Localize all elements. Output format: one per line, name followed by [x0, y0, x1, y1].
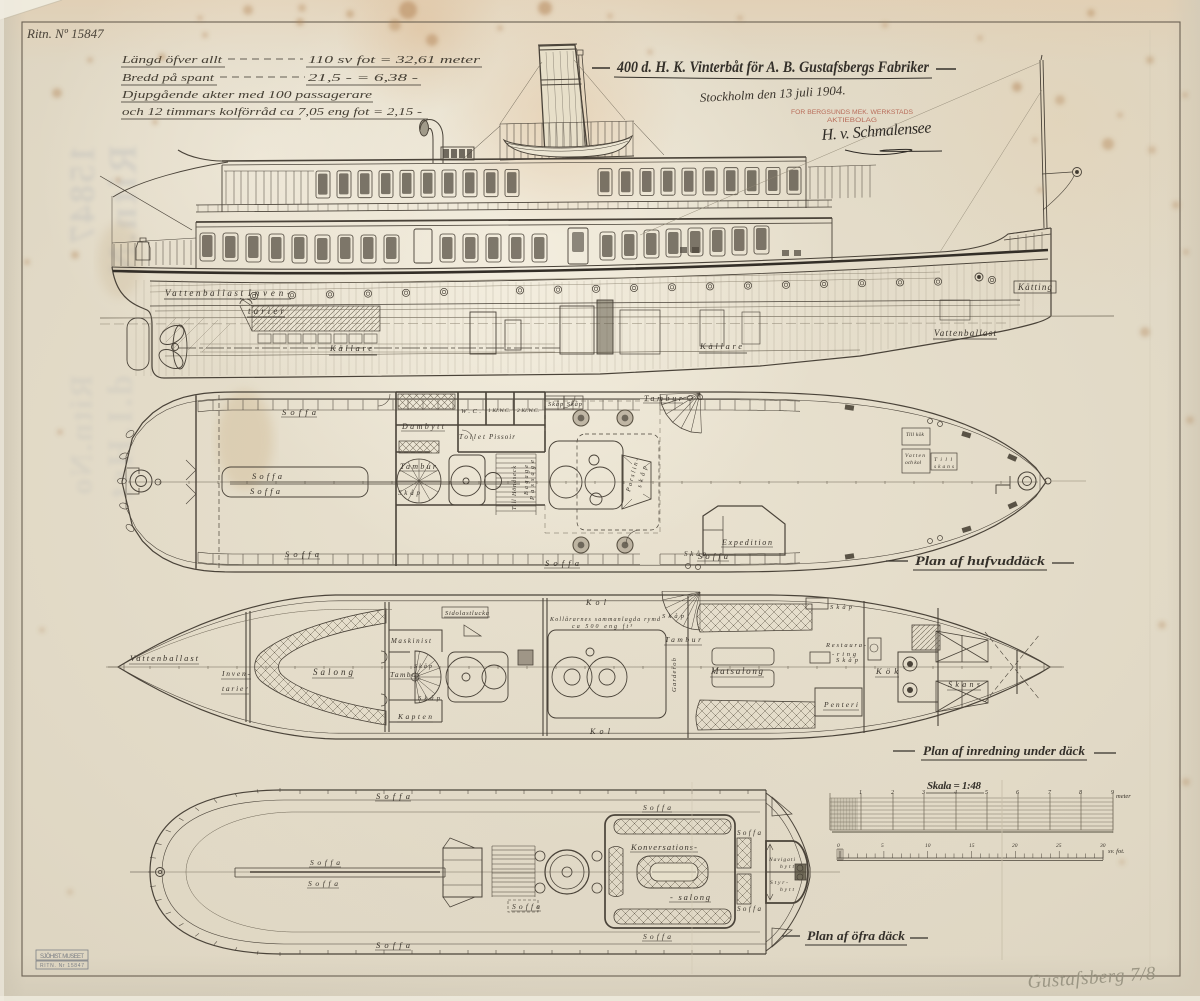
- svg-text:10: 10: [925, 843, 931, 849]
- svg-text:Restaura-: Restaura-: [825, 642, 866, 649]
- svg-text:Vatten: Vatten: [905, 453, 925, 459]
- svg-text:15: 15: [969, 843, 975, 849]
- svg-text:Tambur: Tambur: [644, 394, 683, 403]
- svg-text:hytt: hytt: [780, 887, 794, 893]
- svg-text:Till Höndseck: Till Höndseck: [512, 466, 518, 510]
- svg-text:Skåp: Skåp: [830, 604, 853, 611]
- svg-text:5: 5: [985, 790, 988, 796]
- svg-text:Kol: Kol: [585, 598, 607, 607]
- svg-text:7: 7: [1048, 790, 1052, 796]
- svg-text:Soffa: Soffa: [376, 940, 410, 950]
- svg-text:Soffa: Soffa: [737, 829, 762, 837]
- svg-text:Bredd på spant: Bredd på spant: [122, 73, 214, 84]
- svg-text:Soffa: Soffa: [545, 558, 579, 568]
- svg-text:Plan af öfra däck: Plan af öfra däck: [807, 928, 906, 943]
- svg-text:Vattenballast: Vattenballast: [934, 328, 996, 338]
- svg-text:skåp: skåp: [636, 465, 649, 489]
- svg-text:Skåp: Skåp: [414, 663, 432, 670]
- svg-text:Soffa: Soffa: [376, 791, 410, 801]
- svg-text:400 d. H. K. Vinterbåt för A.: 400 d. H. K. Vinterbåt för A. B. Gustafs…: [616, 59, 930, 76]
- svg-text:1 Kl.W.C.: 1 Kl.W.C.: [488, 408, 510, 414]
- svg-text:0: 0: [837, 843, 840, 849]
- svg-text:Matsalong: Matsalong: [710, 666, 764, 676]
- svg-text:meter: meter: [1116, 793, 1131, 800]
- svg-text:Tambur: Tambur: [400, 462, 437, 471]
- svg-text:Kol: Kol: [589, 727, 611, 736]
- svg-text:Dambytt: Dambytt: [401, 422, 445, 431]
- svg-text:och 12 timmars kolförråd ca: och 12 timmars kolförråd ca 7,05 eng fot…: [122, 107, 422, 118]
- svg-text:W.C.: W.C.: [461, 408, 481, 415]
- svg-text:110 sv fot = 32,61 meter: 110 sv fot = 32,61 meter: [308, 55, 480, 66]
- svg-text:Soffa: Soffa: [282, 407, 316, 417]
- svg-text:Soffa: Soffa: [512, 902, 540, 911]
- svg-text:d.I.Hst: d.I.Hst: [100, 375, 140, 502]
- svg-text:Styr-: Styr-: [770, 880, 788, 886]
- svg-text:SJÖHIST. MUSEET: SJÖHIST. MUSEET: [40, 953, 84, 960]
- svg-text:sv. fot.: sv. fot.: [1108, 848, 1125, 855]
- svg-text:Salong: Salong: [313, 667, 354, 677]
- svg-text:Soffa: Soffa: [308, 879, 338, 888]
- svg-text:Vattenballast: Vattenballast: [130, 653, 199, 663]
- svg-text:2: 2: [891, 790, 894, 796]
- svg-text:hytt: hytt: [780, 864, 794, 870]
- svg-text:Soffa: Soffa: [643, 932, 671, 941]
- svg-text:FÖR BERGSUNDS MEK. WERKSTADS: FÖR BERGSUNDS MEK. WERKSTADS: [791, 109, 913, 116]
- svg-text:Källare: Källare: [329, 343, 372, 353]
- svg-text:2 Kl.W.C.: 2 Kl.W.C.: [517, 408, 539, 414]
- svg-text:- salong: - salong: [670, 892, 710, 902]
- svg-text:6: 6: [1016, 790, 1019, 796]
- svg-text:Penteri: Penteri: [823, 700, 858, 709]
- svg-text:Skåp Skåp: Skåp Skåp: [548, 401, 583, 408]
- svg-text:Maskinist: Maskinist: [390, 637, 432, 645]
- svg-text:Kollårarnes sammanlagda rymd: Kollårarnes sammanlagda rymd: [549, 616, 661, 623]
- svg-text:Längd öfver allt: Längd öfver allt: [120, 55, 222, 66]
- svg-text:Källare: Källare: [699, 341, 742, 351]
- svg-text:Skåp: Skåp: [684, 550, 707, 558]
- svg-text:8: 8: [1079, 790, 1082, 796]
- svg-text:Skåp: Skåp: [836, 657, 859, 664]
- svg-text:9: 9: [1111, 790, 1114, 796]
- svg-text:Soffa: Soffa: [250, 486, 280, 496]
- svg-text:Till: Till: [934, 457, 952, 463]
- svg-text:Kök: Kök: [875, 666, 898, 676]
- svg-text:tarier: tarier: [222, 684, 248, 693]
- svg-text:Till kök: Till kök: [906, 432, 925, 438]
- svg-text:Kapten: Kapten: [397, 712, 432, 721]
- svg-text:Konversations-: Konversations-: [630, 842, 697, 852]
- svg-text:Stockholm den 13 juli 1904.: Stockholm den 13 juli 1904.: [699, 83, 846, 105]
- svg-text:Soffa: Soffa: [643, 803, 671, 812]
- svg-text:4: 4: [954, 789, 957, 796]
- svg-text:Passage: Passage: [529, 460, 536, 501]
- svg-text:Soffa: Soffa: [737, 905, 762, 913]
- svg-text:Gustafsberg 7/8: Gustafsberg 7/8: [1027, 963, 1157, 993]
- svg-text:Djupgående akter med 100 passa: Djupgående akter med 100 passagerare: [120, 90, 372, 101]
- svg-text:Plan af hufvuddäck: Plan af hufvuddäck: [915, 553, 1046, 568]
- svg-text:20: 20: [1012, 843, 1018, 849]
- svg-text:Plan af inredning under däck: Plan af inredning under däck: [923, 743, 1086, 758]
- svg-text:Sidolastlucka: Sidolastlucka: [445, 610, 489, 617]
- svg-text:ca 500 eng ft³: ca 500 eng ft³: [572, 623, 632, 630]
- svg-text:Pissoir: Pissoir: [488, 433, 515, 441]
- svg-text:Kätting: Kätting: [1017, 282, 1053, 292]
- svg-text:Tambur: Tambur: [665, 635, 701, 644]
- svg-text:skans: skans: [934, 464, 954, 470]
- svg-text:Vattenballast: Vattenballast: [165, 288, 243, 298]
- svg-text:Skåp: Skåp: [398, 489, 421, 497]
- svg-text:RITN. Nr 15847: RITN. Nr 15847: [40, 963, 84, 969]
- svg-text:Garderob: Garderob: [671, 657, 678, 692]
- svg-text:Soffa: Soffa: [310, 858, 340, 867]
- svg-text:25: 25: [1056, 843, 1062, 849]
- svg-text:Ritn.No: Ritn.No: [63, 375, 99, 497]
- svg-text:21,5 - = 6,38 -: 21,5 - = 6,38 -: [308, 73, 418, 84]
- svg-text:Tambur: Tambur: [390, 670, 420, 679]
- svg-text:Expedition: Expedition: [721, 538, 772, 547]
- svg-text:1: 1: [859, 790, 862, 796]
- svg-text:och kol: och kol: [905, 460, 921, 466]
- svg-text:15847: 15847: [62, 145, 102, 245]
- svg-text:Ritn. Nº 15847: Ritn. Nº 15847: [26, 26, 104, 41]
- svg-text:Navigati: Navigati: [768, 857, 795, 863]
- svg-text:30: 30: [1099, 843, 1106, 849]
- svg-text:3: 3: [921, 790, 925, 796]
- svg-text:5: 5: [881, 843, 884, 849]
